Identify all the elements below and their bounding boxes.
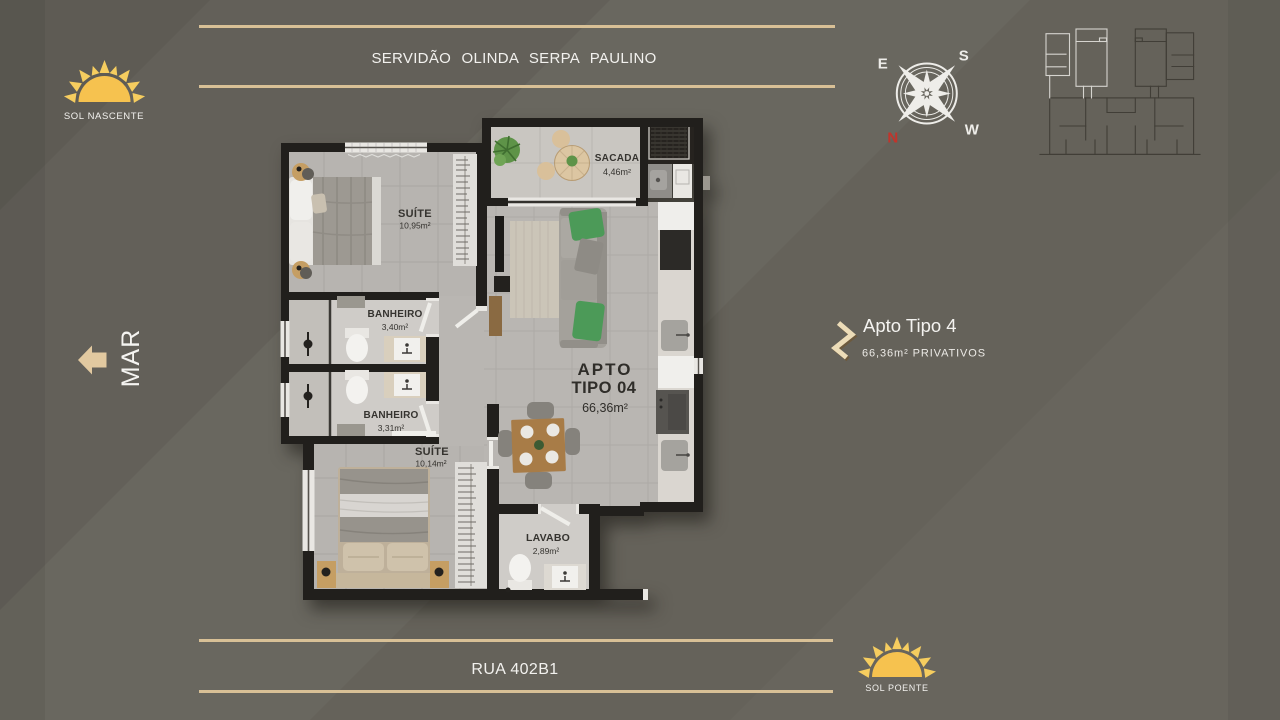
svg-text:4,46m²: 4,46m² <box>603 167 631 177</box>
svg-text:BANHEIRO: BANHEIRO <box>368 309 423 320</box>
svg-text:RUA 402B1: RUA 402B1 <box>471 661 558 678</box>
svg-text:SOL POENTE: SOL POENTE <box>865 683 928 693</box>
svg-text:N: N <box>887 130 898 147</box>
svg-text:SERVIDÃO OLINDA SERPA PAULINO: SERVIDÃO OLINDA SERPA PAULINO <box>371 50 656 67</box>
svg-text:LAVABO: LAVABO <box>526 532 570 544</box>
svg-text:SACADA: SACADA <box>595 153 640 164</box>
svg-text:SOL NASCENTE: SOL NASCENTE <box>64 111 144 122</box>
svg-text:2,89m²: 2,89m² <box>533 546 560 556</box>
svg-text:TIPO 04: TIPO 04 <box>572 379 637 397</box>
svg-text:66,36m²: 66,36m² <box>582 401 628 415</box>
svg-text:66,36m² PRIVATIVOS: 66,36m² PRIVATIVOS <box>862 348 986 360</box>
svg-text:APTO: APTO <box>578 360 633 379</box>
svg-text:3,31m²: 3,31m² <box>378 423 405 433</box>
svg-text:S: S <box>959 48 969 65</box>
svg-text:W: W <box>965 122 980 139</box>
svg-text:E: E <box>878 56 888 73</box>
svg-text:10,14m²: 10,14m² <box>415 459 446 469</box>
svg-text:BANHEIRO: BANHEIRO <box>364 410 419 421</box>
svg-text:MAR: MAR <box>117 329 145 388</box>
svg-text:SUÍTE: SUÍTE <box>398 207 432 220</box>
svg-text:Apto Tipo 4: Apto Tipo 4 <box>863 315 957 336</box>
svg-text:10,95m²: 10,95m² <box>399 221 430 231</box>
svg-text:SUÍTE: SUÍTE <box>415 445 449 458</box>
svg-text:3,40m²: 3,40m² <box>382 322 409 332</box>
